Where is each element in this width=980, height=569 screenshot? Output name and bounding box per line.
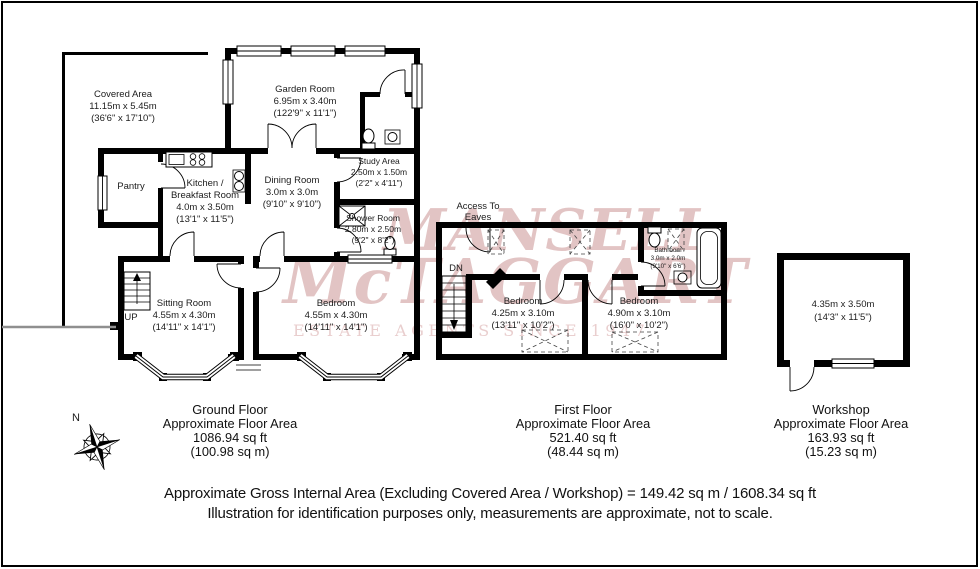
shower-room-metric: 2.80m x 2.50m	[345, 224, 401, 234]
study-area-name: Study Area	[358, 156, 400, 166]
pantry-name: Pantry	[117, 181, 145, 192]
window	[98, 176, 107, 210]
study-area-imperial: (2'2" x 4'11")	[356, 178, 403, 188]
bedroom2-imperial: (16'0" x 10'2")	[610, 320, 668, 331]
shower-room-name: Shower Room	[346, 213, 400, 223]
toilet-icon	[648, 227, 661, 247]
window	[291, 46, 335, 56]
stove-icon	[166, 152, 212, 167]
dining-room-imperial: (9'10" x 9'10")	[263, 199, 321, 210]
ws-caption-sqm: (15.23 sq m)	[805, 444, 877, 459]
bathroom-name: Bathroom	[654, 247, 681, 254]
covered-area-metric: 11.15m x 5.45m	[89, 101, 157, 112]
gf-caption-sqm: (100.98 sq m)	[191, 444, 270, 459]
garden-room-metric: 6.95m x 3.40m	[274, 96, 337, 107]
window	[412, 64, 422, 108]
workshop-metric: 4.35m x 3.50m	[812, 299, 875, 310]
window	[345, 46, 385, 56]
workshop-imperial: (14'3" x 11'5")	[814, 312, 872, 323]
bedroom-gf-name: Bedroom	[317, 298, 356, 309]
kitchen-name2: Breakfast Room	[171, 190, 239, 201]
sitting-room-metric: 4.55m x 4.30m	[153, 310, 216, 321]
dining-room-metric: 3.0m x 3.0m	[266, 187, 318, 198]
bedroom1-name: Bedroom	[504, 296, 543, 307]
bedroom1-metric: 4.25m x 3.10m	[492, 308, 555, 319]
floorplan-page: MANSELL McTAGGART ESTATE AGENTS SINCE 19…	[0, 0, 980, 569]
stairs-up-label: UP	[124, 312, 137, 323]
covered-area-imperial: (36'6" x 17'10")	[91, 113, 155, 124]
ff-caption-title: First Floor	[554, 402, 612, 417]
window	[832, 359, 874, 368]
shower-room-imperial: (9'2" x 8'2")	[352, 235, 395, 245]
bedroom-gf-imperial: (14'11" x 14'1")	[304, 322, 367, 333]
study-area-metric: 2.50m x 1.50m	[351, 167, 407, 177]
bathroom-imperial: (9'10" x 6'6")	[650, 263, 685, 270]
window	[223, 60, 233, 104]
window	[348, 255, 392, 263]
bathroom-metric: 3.0m x 2.0m	[651, 255, 686, 262]
ff-caption-subtitle: Approximate Floor Area	[516, 416, 651, 431]
gf-caption-subtitle: Approximate Floor Area	[163, 416, 298, 431]
gf-caption-sqft: 1086.94 sq ft	[193, 430, 267, 445]
kitchen-name1: Kitchen /	[187, 178, 224, 189]
floorplan-svg: MANSELL McTAGGART ESTATE AGENTS SINCE 19…	[0, 0, 980, 569]
bedroom-gf-metric: 4.55m x 4.30m	[305, 310, 368, 321]
access-eaves-line2: Eaves	[465, 212, 492, 223]
sitting-room-imperial: (14'11" x 14'1")	[152, 322, 215, 333]
toilet-icon	[362, 129, 375, 149]
ws-caption-sqft: 163.93 sq ft	[808, 430, 875, 445]
gf-caption-title: Ground Floor	[192, 402, 268, 417]
footer-gross-area: Approximate Gross Internal Area (Excludi…	[164, 485, 817, 502]
garden-room-imperial: (122'9" x 11'1")	[273, 108, 336, 119]
kitchen-imperial: (13'1" x 11'5")	[176, 214, 234, 225]
garden-room-name: Garden Room	[275, 84, 335, 95]
bedroom1-imperial: (13'11" x 10'2")	[491, 320, 554, 331]
footer-disclaimer: Illustration for identification purposes…	[207, 505, 772, 522]
sitting-room-name: Sitting Room	[157, 298, 211, 309]
bedroom2-name: Bedroom	[620, 296, 659, 307]
covered-area-name: Covered Area	[94, 89, 153, 100]
ff-caption-sqm: (48.44 sq m)	[547, 444, 619, 459]
ff-caption-sqft: 521.40 sq ft	[550, 430, 617, 445]
dining-room-name: Dining Room	[265, 175, 320, 186]
access-eaves-line1: Access To	[456, 201, 499, 212]
stairs-dn-label: DN	[449, 263, 463, 274]
kitchen-metric: 4.0m x 3.50m	[176, 202, 234, 213]
window	[237, 46, 281, 56]
compass-north-label: N	[72, 412, 80, 424]
ws-caption-title: Workshop	[812, 402, 869, 417]
ws-caption-subtitle: Approximate Floor Area	[774, 416, 909, 431]
bathtub-icon	[697, 228, 721, 288]
bedroom2-metric: 4.90m x 3.10m	[608, 308, 671, 319]
